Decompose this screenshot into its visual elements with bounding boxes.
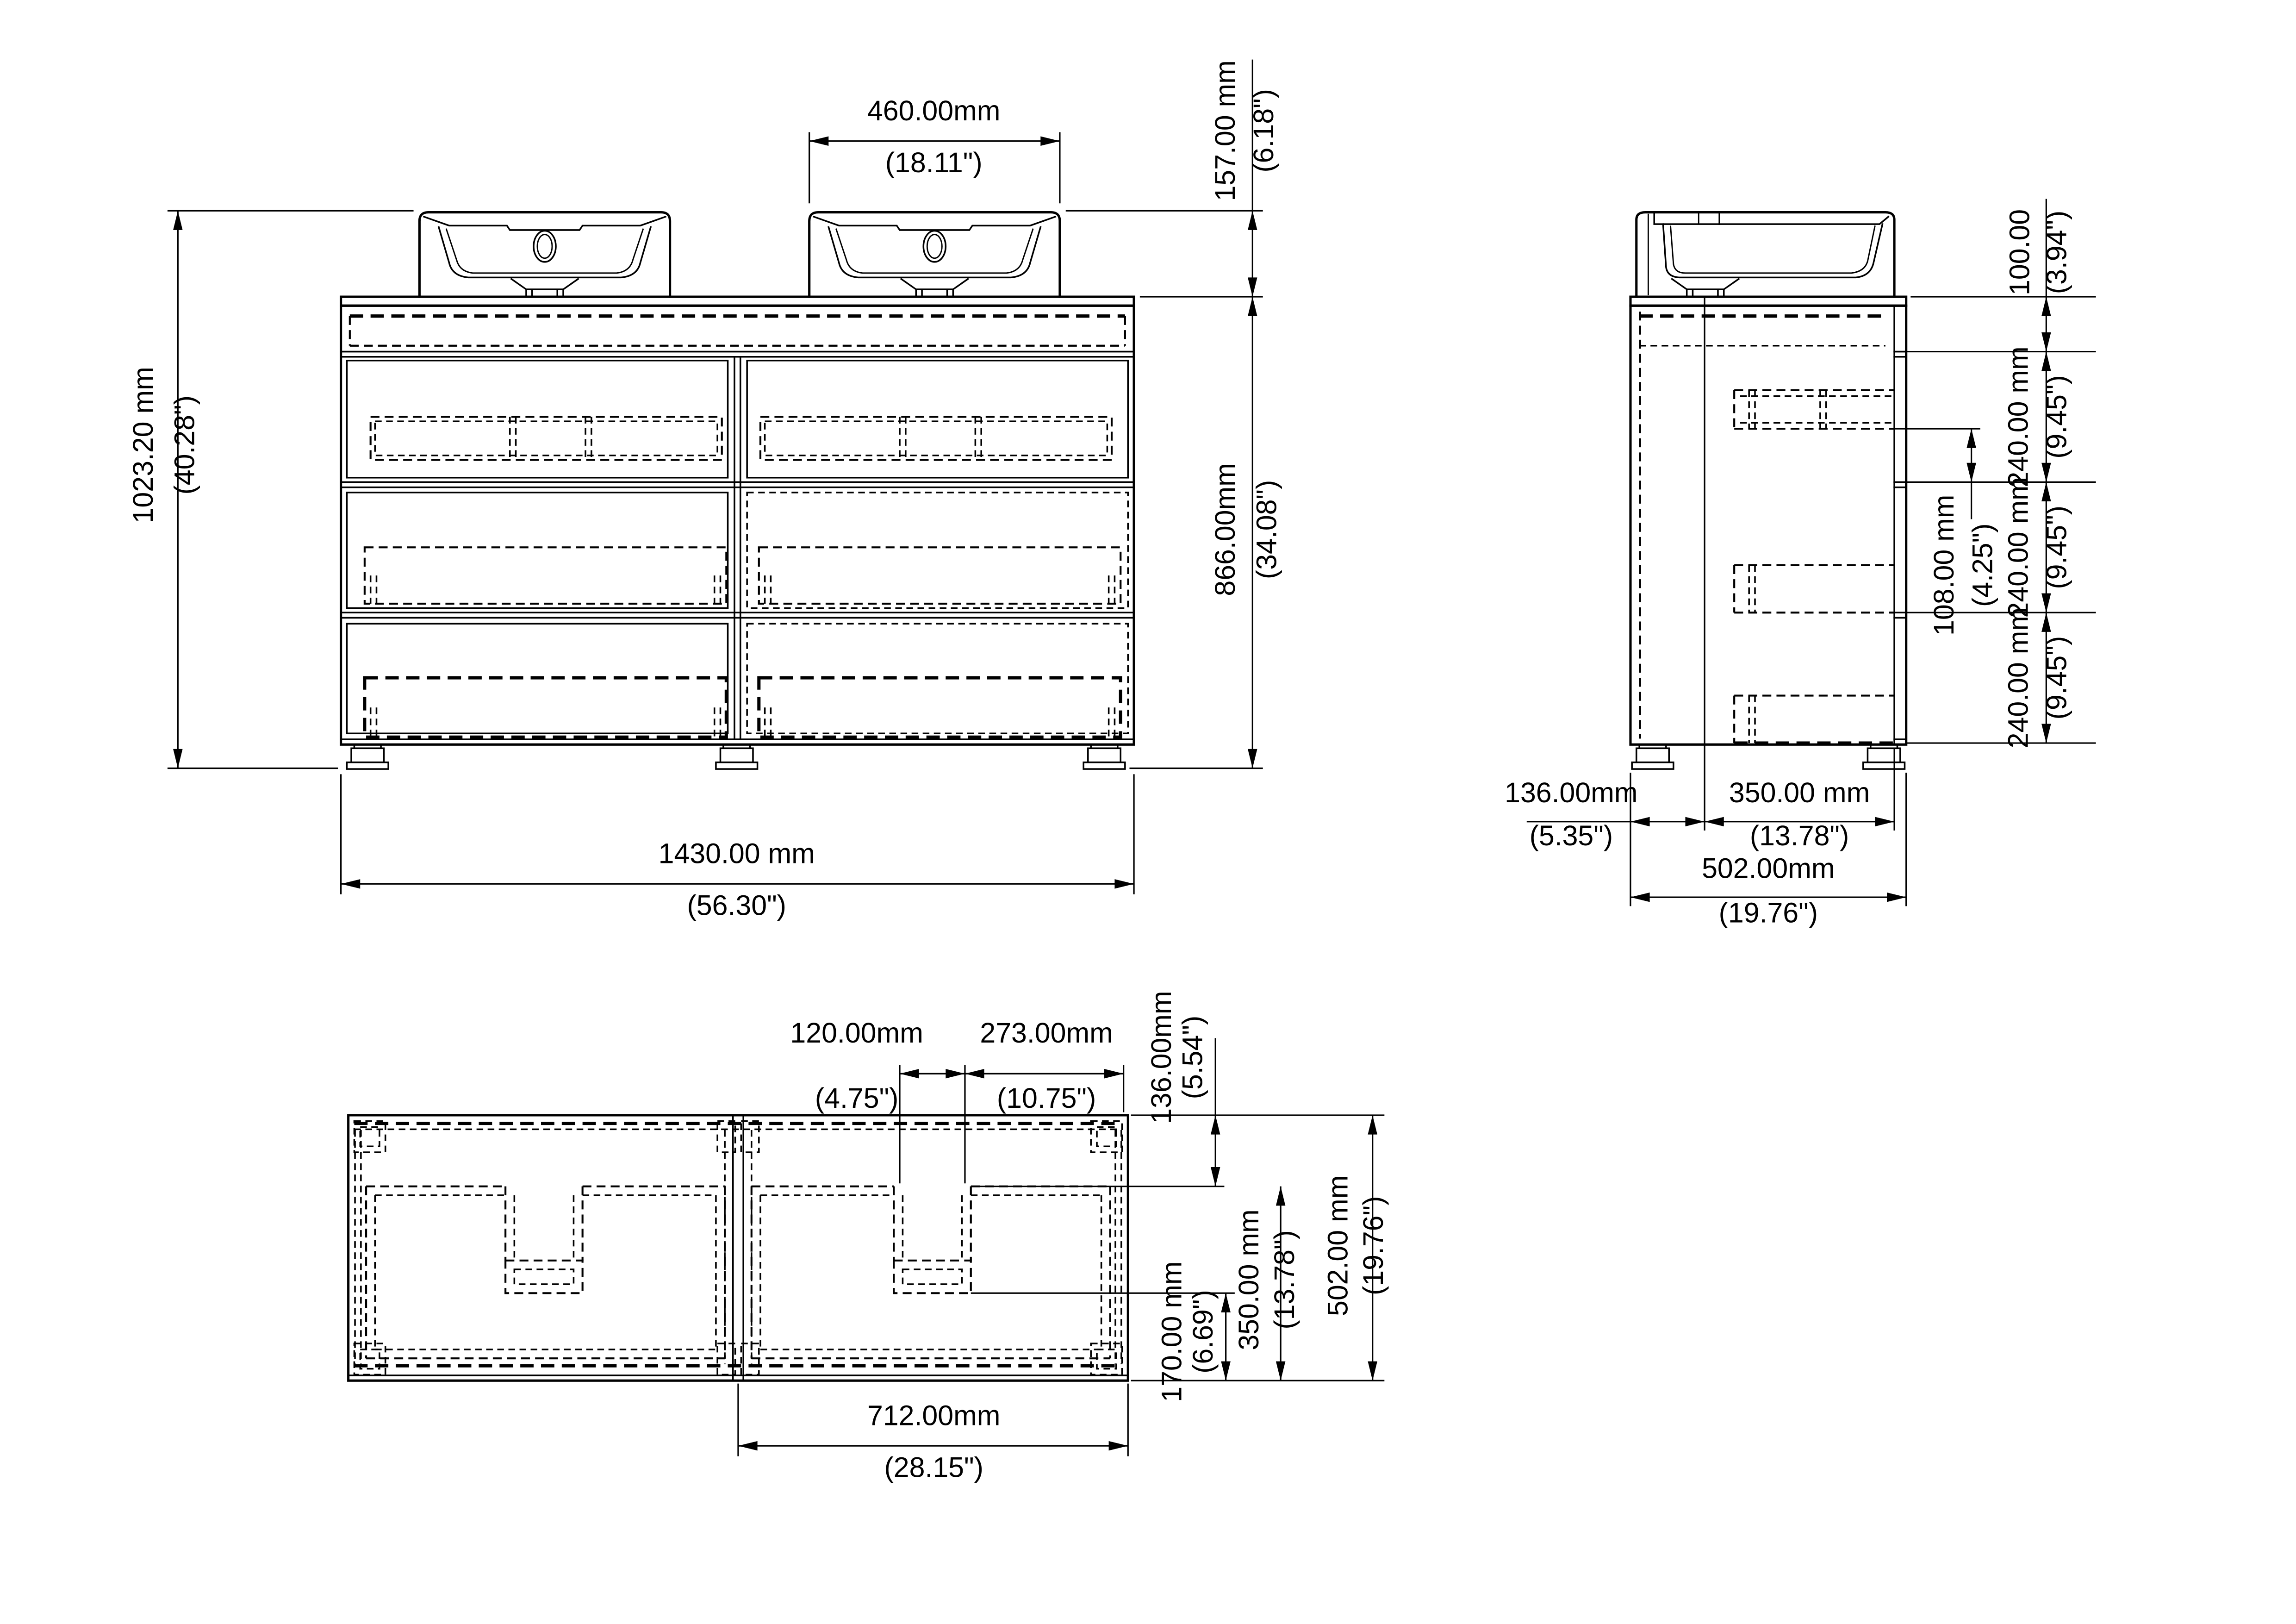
dim-label: 502.00mm — [1702, 853, 1835, 884]
dim-label: (19.76") — [1719, 897, 1818, 929]
drawer-box-left — [366, 1187, 725, 1359]
dim-label: (4.25") — [1966, 523, 1998, 607]
dim-label: (9.45") — [2041, 636, 2072, 720]
drawer-box-right — [752, 1187, 1110, 1359]
dim-label: 712.00mm — [867, 1399, 1000, 1431]
plumbing-cutout-left — [505, 1261, 583, 1293]
dim-label: (6.69") — [1187, 1290, 1219, 1374]
top-rail — [350, 316, 1125, 346]
handle-grooves-side — [1734, 390, 1894, 743]
dim-label: 273.00mm — [980, 1017, 1113, 1049]
dim-label: 100.00 — [2004, 209, 2035, 295]
dim-label: (5.54") — [1176, 1016, 1208, 1099]
drawer-divisions — [341, 352, 1134, 740]
panel-hidden-edges — [354, 1115, 1122, 1380]
dim-top-depth: 502.00 mm (19.76") — [1322, 1115, 1389, 1380]
drain-right — [901, 279, 968, 297]
dim-label: (19.76") — [1357, 1196, 1389, 1295]
top-outline — [348, 1115, 1128, 1380]
dim-label: 350.00 mm — [1233, 1209, 1264, 1350]
dim-label: (56.30") — [687, 890, 786, 921]
corner-brackets — [354, 1121, 1122, 1375]
top-rail-side — [1639, 316, 1885, 346]
dim-label: 157.00 mm — [1209, 60, 1241, 201]
drawer-front-edge-strip — [1894, 306, 1906, 744]
dim-label: (6.18") — [1248, 89, 1279, 173]
dim-label: (3.94") — [2041, 211, 2072, 294]
dim-label: (28.15") — [884, 1451, 983, 1483]
dim-label: 866.00mm — [1209, 463, 1241, 596]
dim-label: 1023.20 mm — [127, 367, 159, 523]
dim-label: 136.00mm — [1505, 777, 1637, 808]
dim-label: 108.00 mm — [1928, 495, 1960, 636]
dim-label: 460.00mm — [867, 95, 1000, 126]
dim-label: (18.11") — [885, 147, 983, 178]
countertop — [341, 297, 1134, 306]
feet-side — [1632, 744, 1904, 769]
front-view: 460.00mm (18.11") 157.00 mm (6.18") 866.… — [127, 60, 1282, 921]
feet-front — [347, 744, 1125, 769]
sink-side — [1636, 212, 1894, 297]
dim-label: 502.00 mm — [1322, 1175, 1353, 1316]
side-view: 100.00 (3.94") 240.00 mm (9.45") 240.00 … — [1505, 199, 2096, 929]
dim-label: (10.75") — [997, 1082, 1096, 1114]
dim-label: 240.00 mm — [2002, 607, 2034, 748]
dim-label: (13.78") — [1269, 1230, 1300, 1329]
dim-label: (9.45") — [2041, 506, 2072, 589]
cabinet-side-panel — [1630, 306, 1906, 744]
sink-front-left — [419, 212, 670, 297]
dim-half-width: 712.00mm (28.15") — [738, 1384, 1128, 1483]
dim-cabinet-height: 866.00mm (34.08") — [1129, 297, 1282, 768]
dim-label: (4.75") — [815, 1082, 899, 1114]
countertop-side — [1630, 297, 1906, 306]
dim-label: 170.00 mm — [1156, 1261, 1188, 1402]
drain-side — [1672, 279, 1739, 297]
plumbing-cutout-right — [894, 1261, 971, 1293]
dim-label: (34.08") — [1251, 480, 1282, 579]
top-view: 120.00mm (4.75") 273.00mm (10.75") 136.0… — [348, 991, 1389, 1483]
dim-label: 240.00 mm — [2002, 346, 2034, 487]
dim-top-rail: 100.00 (3.94") — [1906, 199, 2096, 352]
dim-label: (5.35") — [1530, 820, 1613, 851]
dim-sink-height: 157.00 mm (6.18") — [1066, 60, 1279, 297]
dim-label: 120.00mm — [790, 1017, 923, 1049]
dim-handle-gap: 108.00 mm (4.25") — [1894, 429, 1998, 636]
dim-label: (13.78") — [1750, 820, 1849, 851]
dim-label: 350.00 mm — [1729, 777, 1870, 808]
dim-label: (40.28") — [169, 395, 200, 494]
dim-label: 136.00mm — [1145, 991, 1177, 1124]
dim-cabinet-width: 1430.00 mm (56.30") — [341, 774, 1134, 921]
handle-grooves-front — [365, 417, 1120, 737]
dim-label: 240.00 mm — [2002, 477, 2034, 618]
vanity-dimension-drawing: 460.00mm (18.11") 157.00 mm (6.18") 866.… — [0, 0, 2296, 1624]
drain-left — [511, 279, 578, 297]
dim-overall-height: 1023.20 mm (40.28") — [127, 211, 414, 768]
sink-front-right — [809, 212, 1060, 297]
dim-cutout-width: 120.00mm (4.75") 273.00mm (10.75") — [790, 1017, 1123, 1183]
dim-label: 1430.00 mm — [659, 837, 815, 869]
dim-sink-width: 460.00mm (18.11") — [809, 95, 1060, 203]
dim-depth-chain: 136.00mm (5.35") 350.00 mm (13.78") 502.… — [1505, 297, 1906, 929]
dim-label: (9.45") — [2041, 375, 2072, 459]
